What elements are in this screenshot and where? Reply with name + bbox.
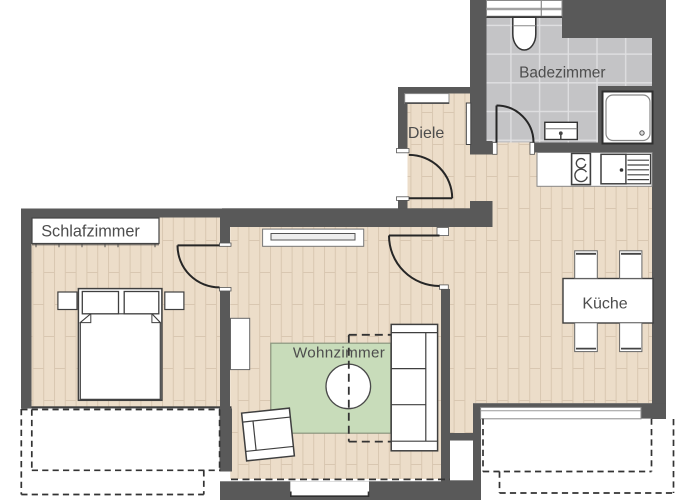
svg-text:Diele: Diele xyxy=(408,125,445,142)
svg-text:Schlafzimmer: Schlafzimmer xyxy=(41,222,140,240)
svg-text:Wohnzimmer: Wohnzimmer xyxy=(293,344,385,361)
svg-text:Badezimmer: Badezimmer xyxy=(519,65,605,82)
svg-text:Küche: Küche xyxy=(582,296,627,313)
